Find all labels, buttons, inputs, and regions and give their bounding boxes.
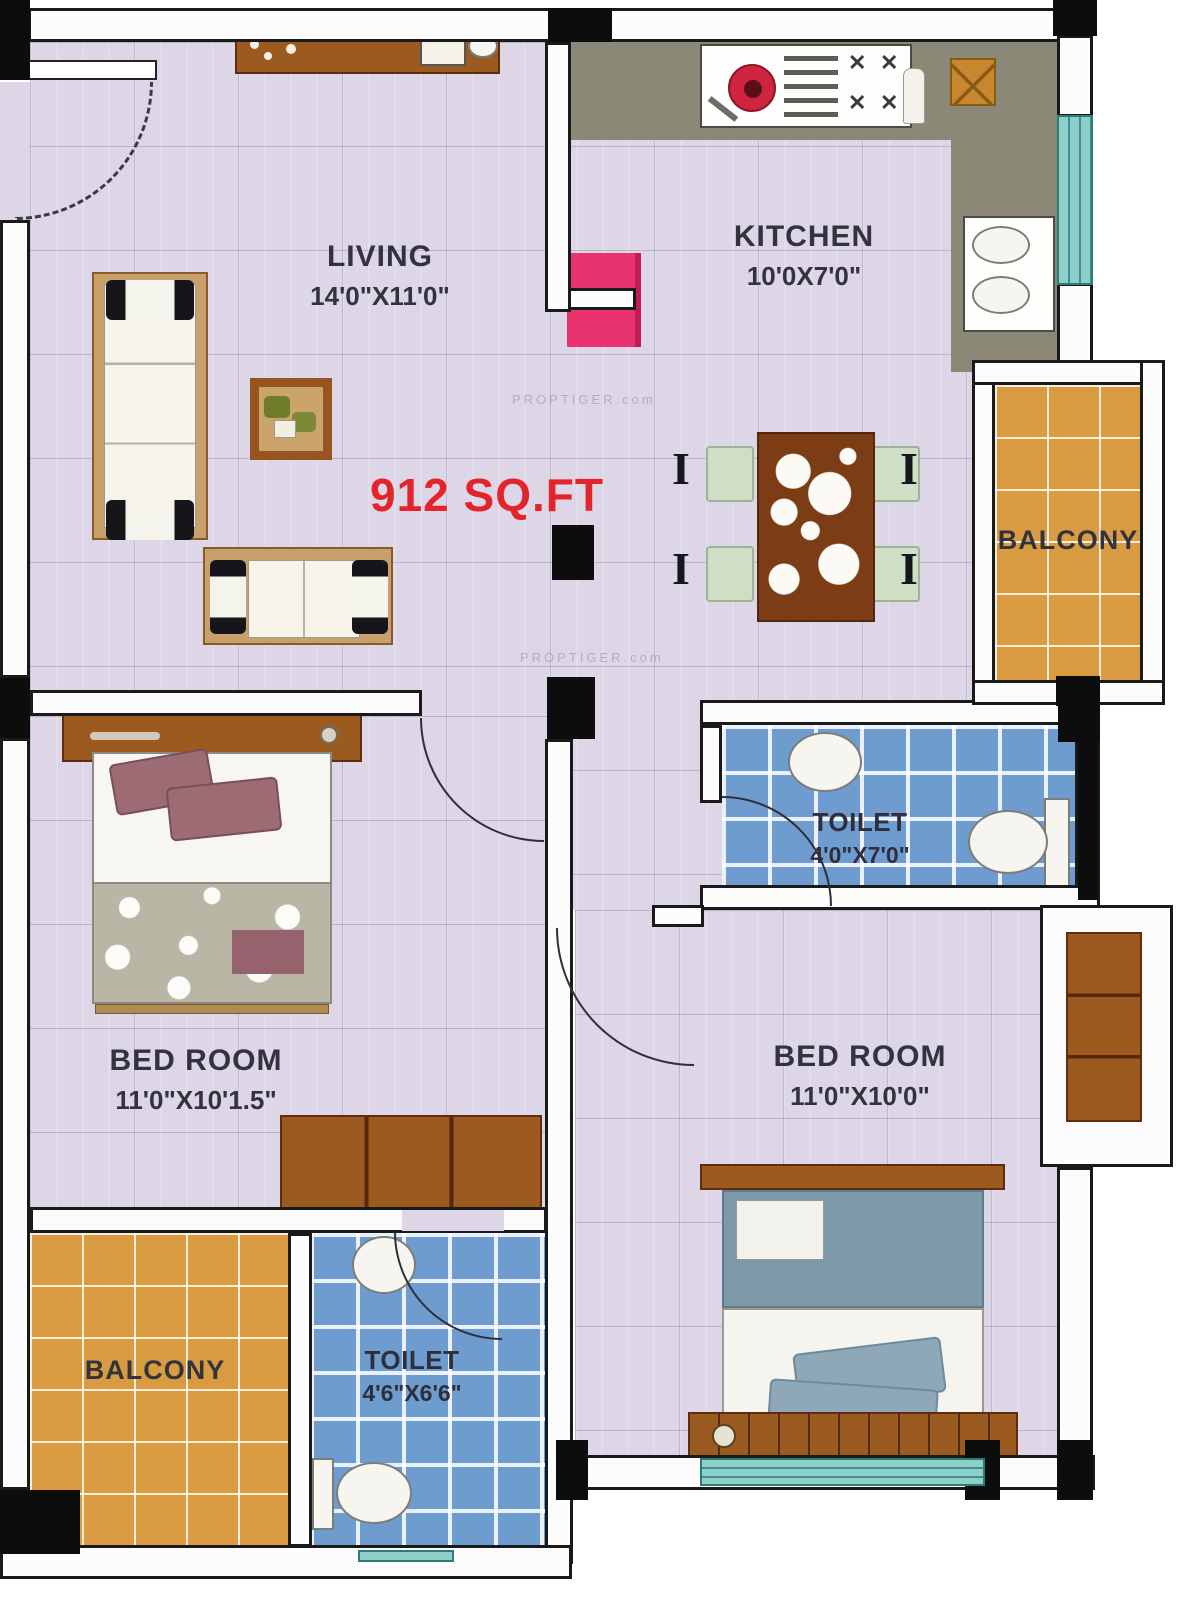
column [0, 0, 30, 80]
balcony-bottom-name: BALCONY [10, 1354, 300, 1388]
decor-dot [264, 52, 272, 60]
wardrobe-right [1066, 932, 1142, 1122]
sofa-pillow [106, 500, 194, 540]
room-label-kitchen: KITCHEN 10'0X7'0" [644, 218, 964, 292]
kitchen-name: KITCHEN [644, 218, 964, 256]
kitchen-window [1057, 115, 1093, 285]
wall-bedroomleft-top [30, 690, 422, 716]
column [552, 525, 594, 580]
basket-icon [950, 58, 996, 106]
sofa-cushions [248, 560, 360, 638]
footboard-knob [712, 1424, 736, 1448]
toilet-bottom-name: TOILET [262, 1344, 562, 1377]
bedroom-right-window [700, 1458, 985, 1486]
wall-living-kitchen [545, 42, 571, 312]
toilet-bottom-window [358, 1550, 454, 1562]
decor-dot [286, 44, 296, 54]
chair-end-icon: I [900, 446, 918, 492]
column [0, 1490, 80, 1554]
living-name: LIVING [220, 238, 540, 276]
dresser-knob [320, 726, 338, 744]
chair-end-icon: I [672, 446, 690, 492]
entry-door-leaf [15, 60, 157, 80]
dresser-handle [90, 732, 160, 740]
balcony-right-wall-top [972, 360, 1165, 385]
column [548, 8, 612, 42]
watermark: PROPTIGER.com [520, 650, 664, 665]
door-gap [402, 1210, 504, 1231]
room-label-toilet-bottom: TOILET 4'6"X6'6" [262, 1344, 562, 1407]
toilet-bottom-dims: 4'6"X6'6" [262, 1379, 562, 1408]
room-label-balcony-right: BALCONY [918, 524, 1200, 558]
bed-footboard [95, 1004, 329, 1014]
living-dims: 14'0"X11'0" [220, 280, 540, 313]
dining-chair [706, 546, 754, 602]
room-label-toilet-right: TOILET 4'0"X7'0" [710, 806, 1010, 869]
toilet-right-dims: 4'0"X7'0" [710, 841, 1010, 870]
burner-icon: ✕ [880, 92, 898, 114]
sink-basin [972, 226, 1030, 264]
dining-table [757, 432, 875, 622]
blanket-patch [232, 930, 304, 974]
column [1057, 1440, 1093, 1500]
bed-right-headboard [700, 1164, 1005, 1190]
chair-end-icon: I [900, 546, 918, 592]
pan-center [744, 80, 762, 98]
room-label-bedroom-left: BED ROOM 11'0"X10'1.5" [36, 1042, 356, 1116]
column [1056, 676, 1100, 706]
column [556, 1440, 588, 1500]
column [547, 677, 595, 739]
floor-plan: ✕ ✕ ✕ ✕ I I I I [0, 0, 1200, 1622]
kitchen-dims: 10'0X7'0" [644, 260, 964, 293]
column [1058, 700, 1100, 742]
sofa-pillow [106, 280, 194, 320]
toilet-right-name: TOILET [710, 806, 1010, 839]
bedroom-left-name: BED ROOM [36, 1042, 356, 1080]
wall-stub-kitchen [568, 288, 636, 310]
wall-bottom-left [0, 1545, 572, 1579]
wardrobe-left [280, 1115, 542, 1209]
area-label: 912 SQ.FT [322, 468, 652, 522]
coffee-table [250, 378, 332, 460]
bottle-icon [903, 68, 925, 124]
sink-basin [972, 276, 1030, 314]
burner-icon: ✕ [848, 52, 866, 74]
room-label-bedroom-right: BED ROOM 11'0"X10'0" [700, 1038, 1020, 1112]
plant-pot [274, 420, 296, 438]
bedroom-right-dims: 11'0"X10'0" [700, 1080, 1020, 1113]
wc-tank [312, 1458, 334, 1530]
wall-right-upper [1057, 35, 1093, 117]
watermark: PROPTIGER.com [512, 392, 656, 407]
plant-icon [264, 396, 290, 418]
balcony-right-name: BALCONY [918, 524, 1200, 558]
bedroom-right-name: BED ROOM [700, 1038, 1020, 1076]
sofa-cushions [104, 284, 196, 528]
sofa-pillow [210, 560, 246, 634]
room-label-balcony-bottom: BALCONY [10, 1354, 300, 1388]
sofa-pillow [352, 560, 388, 634]
shaft-strip [1078, 742, 1098, 900]
room-label-living: LIVING 14'0"X11'0" [220, 238, 540, 312]
burner-icon: ✕ [848, 92, 866, 114]
bedroom-left-dims: 11'0"X10'1.5" [36, 1084, 356, 1117]
grill-lines [784, 56, 838, 118]
dining-chair [706, 446, 754, 502]
wall-left-upper [0, 220, 30, 678]
wall-door-stub [652, 905, 704, 927]
burner-icon: ✕ [880, 52, 898, 74]
wall-toiletright-left [700, 725, 722, 803]
bed-right-inset [736, 1200, 824, 1260]
wash-basin [788, 732, 862, 792]
wc-toilet [336, 1462, 412, 1524]
column [0, 678, 30, 738]
column [1053, 0, 1097, 36]
chair-end-icon: I [672, 546, 690, 592]
